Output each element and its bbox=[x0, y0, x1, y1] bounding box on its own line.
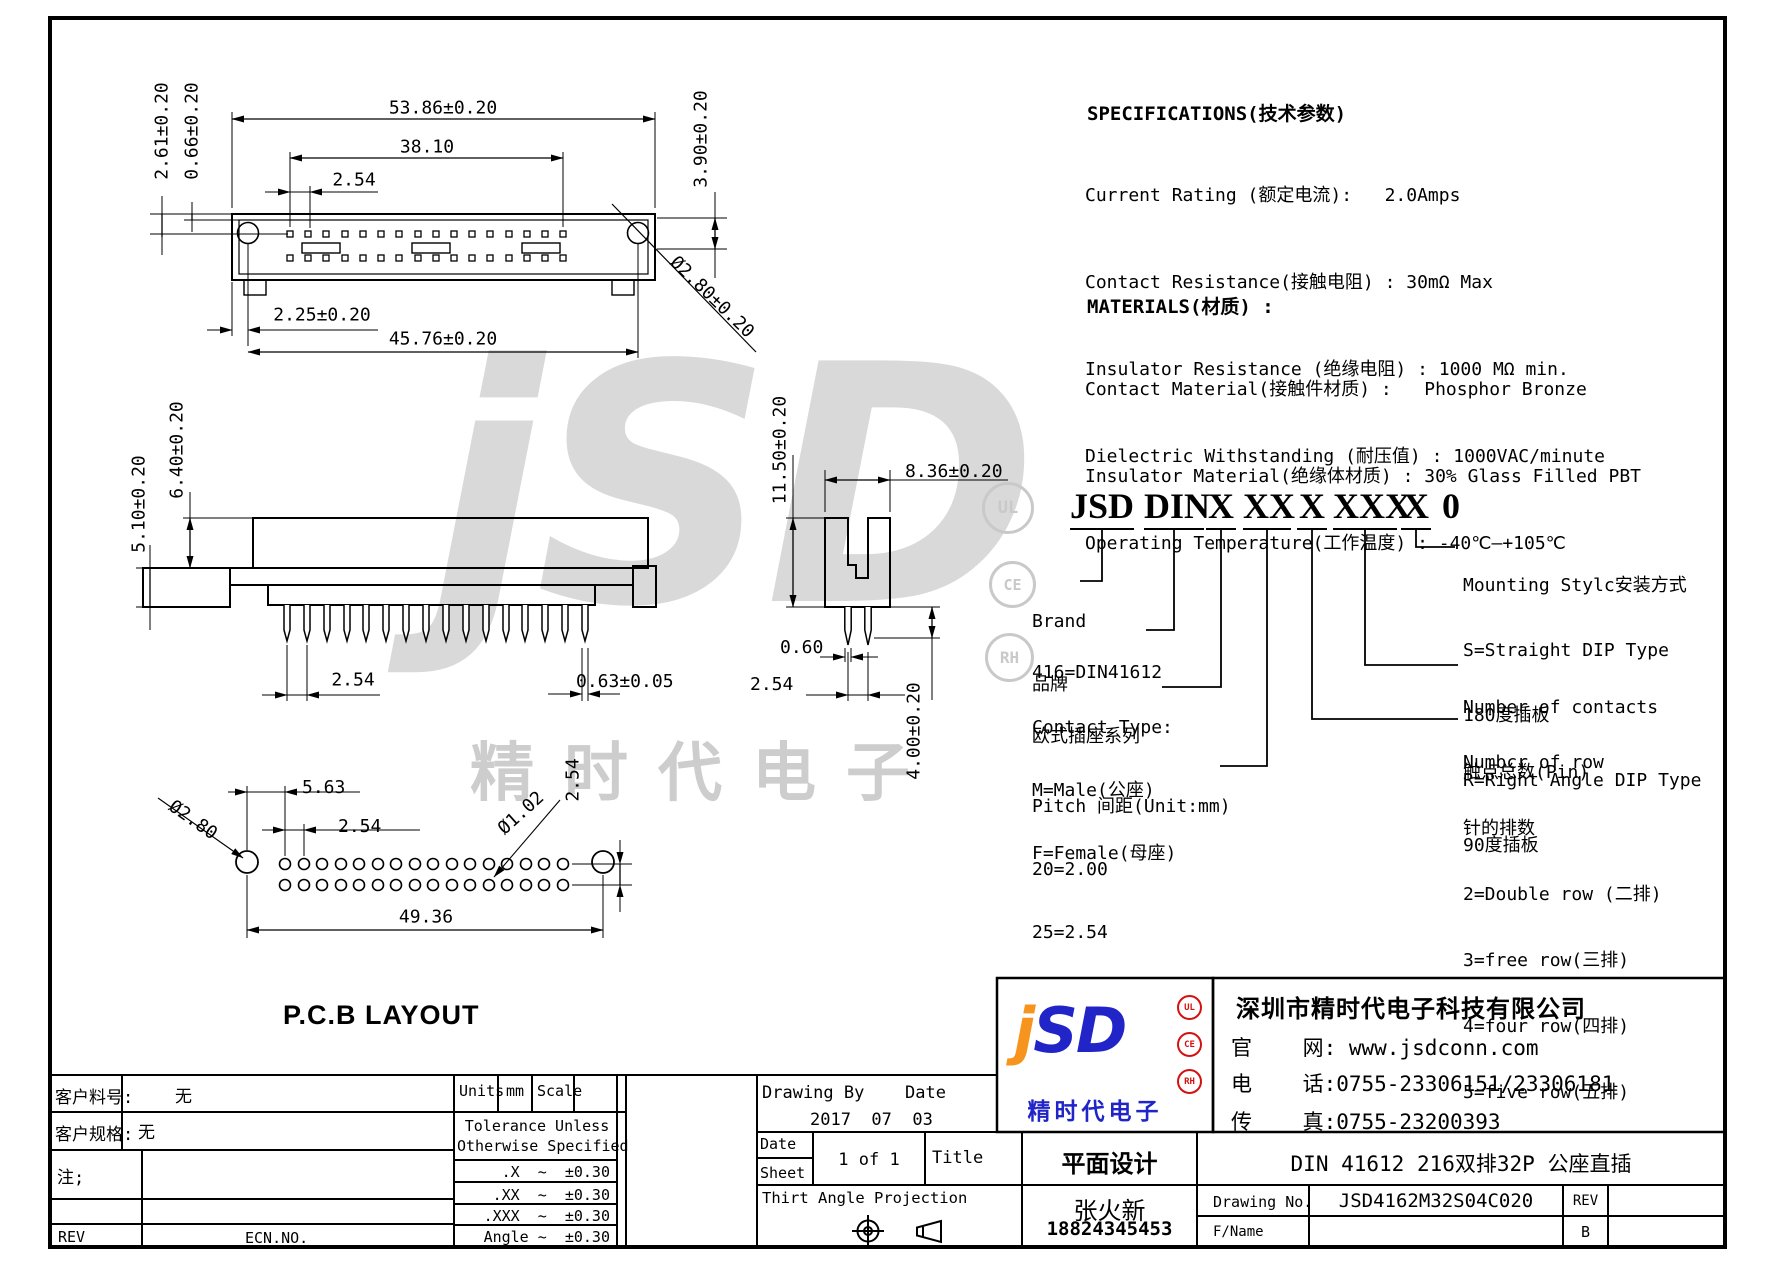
units-value: mm bbox=[506, 1082, 524, 1100]
sheet-value: 1 of 1 bbox=[813, 1150, 925, 1170]
company-tel: 电 话:0755-23306151/23306181 bbox=[1231, 1068, 1614, 1098]
company-website: 官 网: www.jsdconn.com bbox=[1231, 1032, 1539, 1062]
pn-pitch-block: Pitch 间距(Unit:mm) 20=2.00 25=2.54 bbox=[1032, 754, 1231, 985]
specifications-title: SPECIFICATIONS(技术参数) bbox=[1087, 99, 1346, 126]
dim-top-offset: 2.25±0.20 bbox=[273, 305, 371, 326]
fname-label: F/Name bbox=[1213, 1224, 1264, 1240]
spec-line: Current Rating (额定电流): 2.0Amps bbox=[1085, 181, 1605, 210]
scale-label: Scale bbox=[537, 1082, 582, 1100]
dim-top-width: 53.86±0.20 bbox=[389, 98, 497, 119]
customer-spec-value: 无 bbox=[138, 1118, 155, 1143]
dim-pcb-pitch: 2.54 bbox=[338, 816, 381, 837]
dim-side-len: 4.00±0.20 bbox=[904, 682, 925, 780]
pn-contact-type-title: Contact Type: bbox=[1032, 717, 1176, 738]
pn-group-mounting: X bbox=[1401, 486, 1431, 530]
dim-top-h1: 2.61±0.20 bbox=[152, 82, 173, 180]
customer-pn-label: 客户料号: bbox=[55, 1083, 133, 1108]
ecn-label: ECN.NO. bbox=[245, 1229, 308, 1247]
customer-pn-value: 无 bbox=[175, 1082, 192, 1107]
tolerance-title-2: Otherwise Specified bbox=[457, 1137, 617, 1155]
third-angle-projection-icon bbox=[852, 1215, 941, 1247]
pn-group-brand: JSD bbox=[1070, 486, 1134, 530]
materials-title: MATERIALS(材质) : bbox=[1087, 292, 1274, 319]
pn-mounting-title: Mounting Stylc安装方式 bbox=[1463, 574, 1701, 597]
tolerance-xx: .XX ~ ±0.30 bbox=[440, 1186, 610, 1204]
units-label: Units bbox=[459, 1082, 504, 1100]
date-value: 2017 07 03 bbox=[810, 1110, 933, 1130]
dim-front-pin: 0.63±0.05 bbox=[576, 671, 674, 692]
logo-sd: SD bbox=[1033, 994, 1125, 1067]
designer-phone: 18824345453 bbox=[1022, 1218, 1197, 1240]
pn-group-contacts: XXX bbox=[1333, 486, 1397, 530]
date-header-label: Date bbox=[905, 1083, 946, 1103]
company-fax: 传 真:0755-23200393 bbox=[1231, 1106, 1501, 1136]
title-value: 平面设计 bbox=[1022, 1144, 1197, 1179]
pn-group-rows: X bbox=[1297, 486, 1327, 530]
ce-badge-icon: CE bbox=[1177, 1032, 1202, 1057]
tolerance-title-1: Tolerance Unless bbox=[457, 1117, 617, 1135]
rev-row-label: REV bbox=[58, 1228, 85, 1246]
product-title: DIN 41612 216双排32P 公座直插 bbox=[1197, 1148, 1725, 1178]
rev-col-label: REV bbox=[1563, 1193, 1608, 1209]
pn-rows-cn: 针的排数 bbox=[1463, 817, 1662, 841]
rev-value: B bbox=[1563, 1223, 1608, 1241]
note-label: 注; bbox=[57, 1163, 84, 1188]
customer-spec-label: 客户规格: bbox=[55, 1120, 133, 1145]
projection-label: Thirt Angle Projection bbox=[762, 1189, 967, 1207]
dim-top-inner: 45.76±0.20 bbox=[389, 329, 497, 350]
watermark-rh-badge-icon: RH bbox=[985, 633, 1034, 682]
dim-front-pitch: 2.54 bbox=[331, 670, 374, 691]
pcb-layout-title: P.C.B LAYOUT bbox=[283, 1000, 480, 1031]
dim-front-h2: 6.40±0.20 bbox=[167, 401, 188, 499]
dim-side-pitch: 2.54 bbox=[750, 674, 793, 695]
title-label: Title bbox=[932, 1148, 983, 1168]
material-line: Contact Material(接触件材质) : Phosphor Bronz… bbox=[1085, 375, 1641, 404]
pn-group-suffix: 0 bbox=[1437, 486, 1465, 528]
dim-pcb-row: 2.54 bbox=[563, 758, 584, 801]
pn-pitch-25: 25=2.54 bbox=[1032, 922, 1231, 943]
watermark-ce-badge-icon: CE bbox=[989, 561, 1036, 608]
rh-badge-icon: RH bbox=[1177, 1069, 1202, 1094]
tolerance-angle: Angle ~ ±0.30 bbox=[440, 1228, 610, 1246]
drawing-no-label: Drawing No. bbox=[1213, 1193, 1312, 1211]
drawing-sheet: jSD 精时代电子 UL CE RH bbox=[0, 0, 1778, 1265]
pn-pitch-20: 20=2.00 bbox=[1032, 859, 1231, 880]
tolerance-xxx: .XXX ~ ±0.30 bbox=[440, 1207, 610, 1225]
dim-side-width: 8.36±0.20 bbox=[905, 461, 1003, 482]
dim-pcb-edge: 5.63 bbox=[302, 777, 345, 798]
dim-side-pin: 0.60 bbox=[780, 637, 823, 658]
dim-front-h1: 5.10±0.20 bbox=[129, 455, 150, 553]
sheet-cell-label: Sheet bbox=[760, 1164, 805, 1182]
pn-rows-3: 3=free row(三排) bbox=[1463, 949, 1662, 973]
pn-group-pitch: XX bbox=[1243, 486, 1291, 530]
watermark-logo-letters: jSD bbox=[430, 295, 1031, 679]
dim-pcb-span: 49.36 bbox=[399, 907, 453, 928]
pn-rows-en: Numbcr of row bbox=[1463, 751, 1662, 775]
logo-cn-text: 精时代电子 bbox=[1005, 1092, 1185, 1126]
pn-rows-2: 2=Double row (二排) bbox=[1463, 883, 1662, 907]
logo-j: j bbox=[1014, 994, 1033, 1067]
dim-side-height: 11.50±0.20 bbox=[770, 396, 791, 504]
ul-badge-icon: UL bbox=[1177, 995, 1202, 1020]
watermark-ul-badge-icon: UL bbox=[982, 482, 1034, 534]
date-cell-label: Date bbox=[760, 1135, 796, 1153]
drawing-no-value: JSD4162M32S04C020 bbox=[1309, 1190, 1563, 1212]
company-name: 深圳市精时代电子科技有限公司 bbox=[1236, 989, 1586, 1024]
dim-top-pitch: 2.54 bbox=[332, 170, 375, 191]
pn-pitch-title: Pitch 间距(Unit:mm) bbox=[1032, 796, 1231, 817]
drawing-by-label: Drawing By bbox=[762, 1083, 864, 1103]
dim-top-right: 3.90±0.20 bbox=[691, 90, 712, 188]
dim-pcb-hole: Ø2.80 bbox=[165, 796, 221, 844]
tolerance-x: .X ~ ±0.30 bbox=[440, 1163, 610, 1181]
pn-group-contact-type: X bbox=[1206, 486, 1236, 530]
logo: jSD bbox=[1014, 994, 1125, 1067]
pn-group-series: DIN bbox=[1144, 486, 1204, 530]
dim-top-span: 38.10 bbox=[400, 137, 454, 158]
dim-top-h2: 0.66±0.20 bbox=[182, 82, 203, 180]
